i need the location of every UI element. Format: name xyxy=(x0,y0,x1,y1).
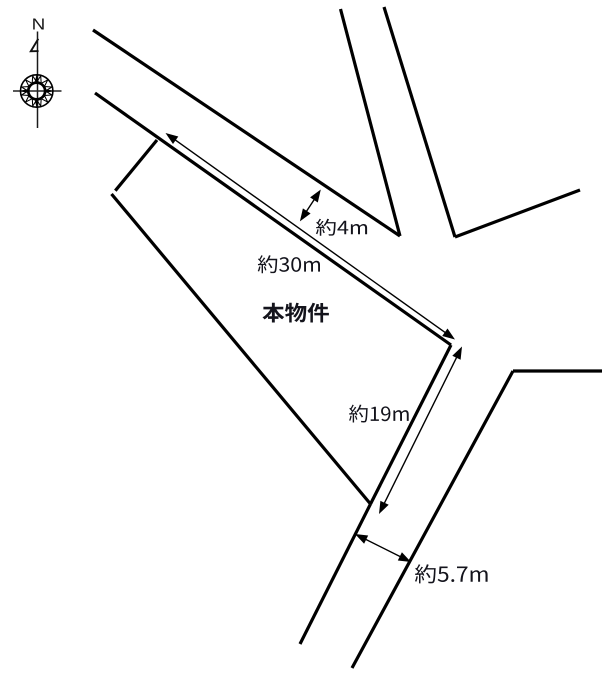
svg-text:N: N xyxy=(32,15,46,33)
